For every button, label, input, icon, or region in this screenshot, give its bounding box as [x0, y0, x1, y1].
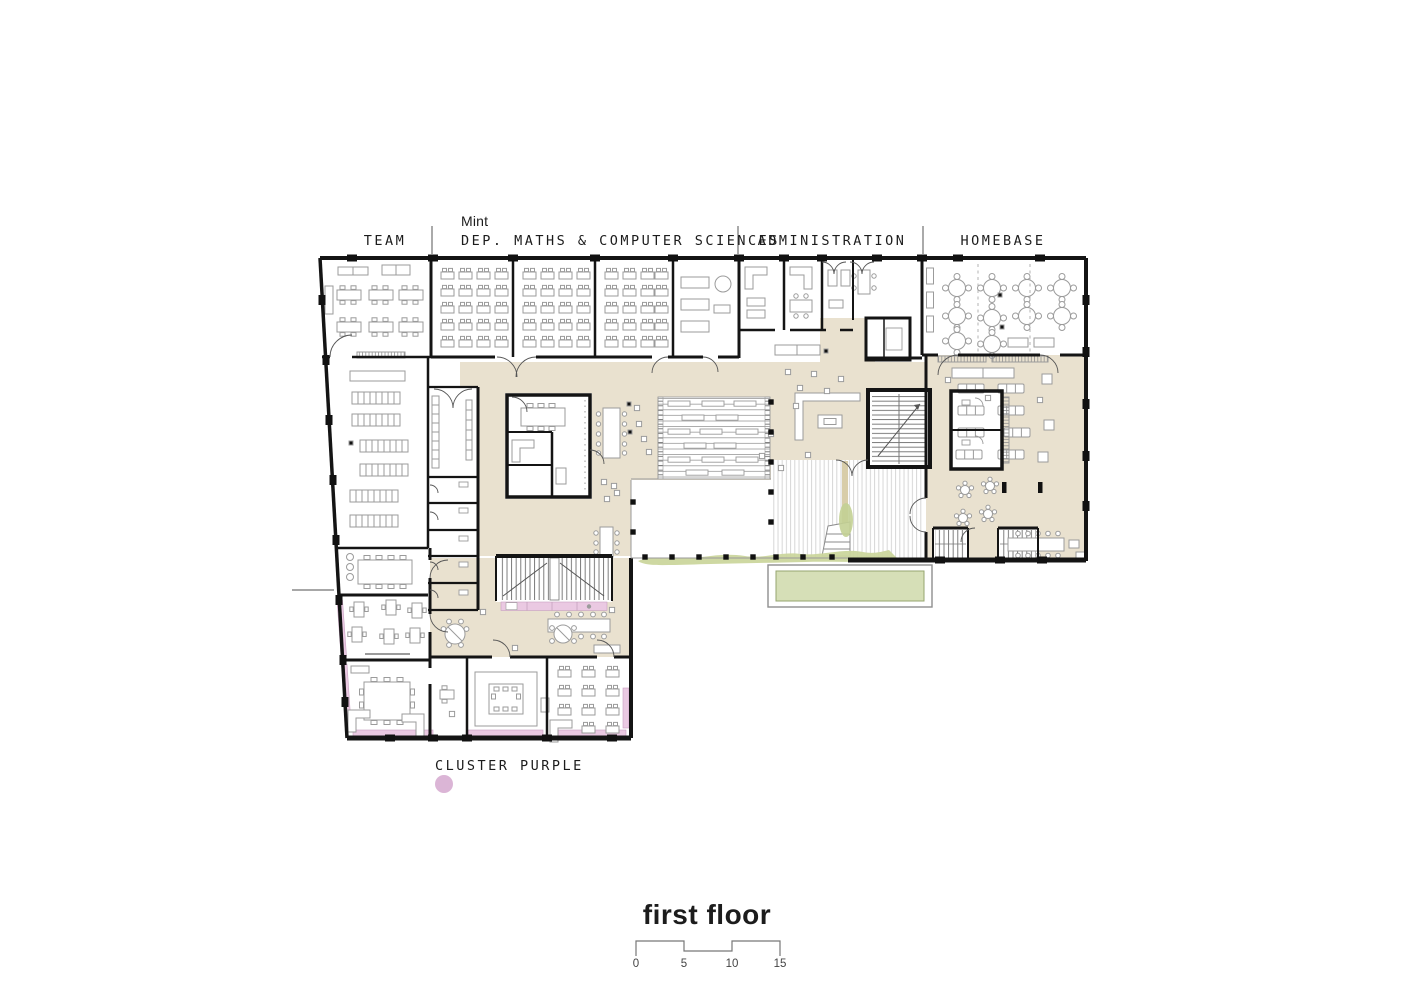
scale-tick-10: 10	[726, 958, 739, 970]
cluster-purple-marker	[435, 775, 453, 793]
scale-tick-0: 0	[633, 958, 639, 970]
seminar-narrow-room	[432, 396, 472, 468]
floor-plan-drawing: TEAM Mint DEP. MATHS & COMPUTER SCIENCES…	[0, 0, 1414, 1000]
scale-tick-5: 5	[681, 958, 687, 970]
zone-label-dep-sub: Mint	[461, 213, 488, 229]
meeting-room-top	[681, 276, 731, 332]
admin-office-furniture	[745, 267, 876, 318]
scale-tick-15: 15	[774, 958, 787, 970]
tribune	[658, 397, 770, 479]
small-room-furniture	[440, 686, 455, 717]
zone-label-homebase: HOMEBASE	[960, 233, 1045, 249]
stair-pink-strip	[501, 602, 607, 611]
planting-bush	[839, 503, 853, 537]
seminar-room-furniture	[475, 672, 549, 726]
floor-plan-page: TEAM Mint DEP. MATHS & COMPUTER SCIENCES…	[0, 0, 1414, 1000]
zone-label-administration: ADMINISTRATION	[758, 233, 907, 249]
southwest-rooms-furniture	[347, 554, 427, 737]
homebase-room-furniture	[927, 264, 1077, 359]
stair-core-east	[872, 394, 926, 464]
classroom-desks	[441, 268, 668, 347]
stair-southeast-1	[935, 530, 966, 558]
scale-bar: 0 5 10 15	[633, 941, 787, 970]
zone-label-cluster: CLUSTER PURPLE	[435, 758, 584, 774]
zone-label-dep: DEP. MATHS & COMPUTER SCIENCES	[461, 233, 780, 249]
main-stair-south	[499, 558, 609, 600]
zone-label-team: TEAM	[364, 233, 407, 249]
page-title: first floor	[643, 899, 771, 930]
team-room-furniture	[325, 265, 423, 336]
library-furniture	[349, 371, 408, 527]
water-basin	[768, 565, 932, 607]
